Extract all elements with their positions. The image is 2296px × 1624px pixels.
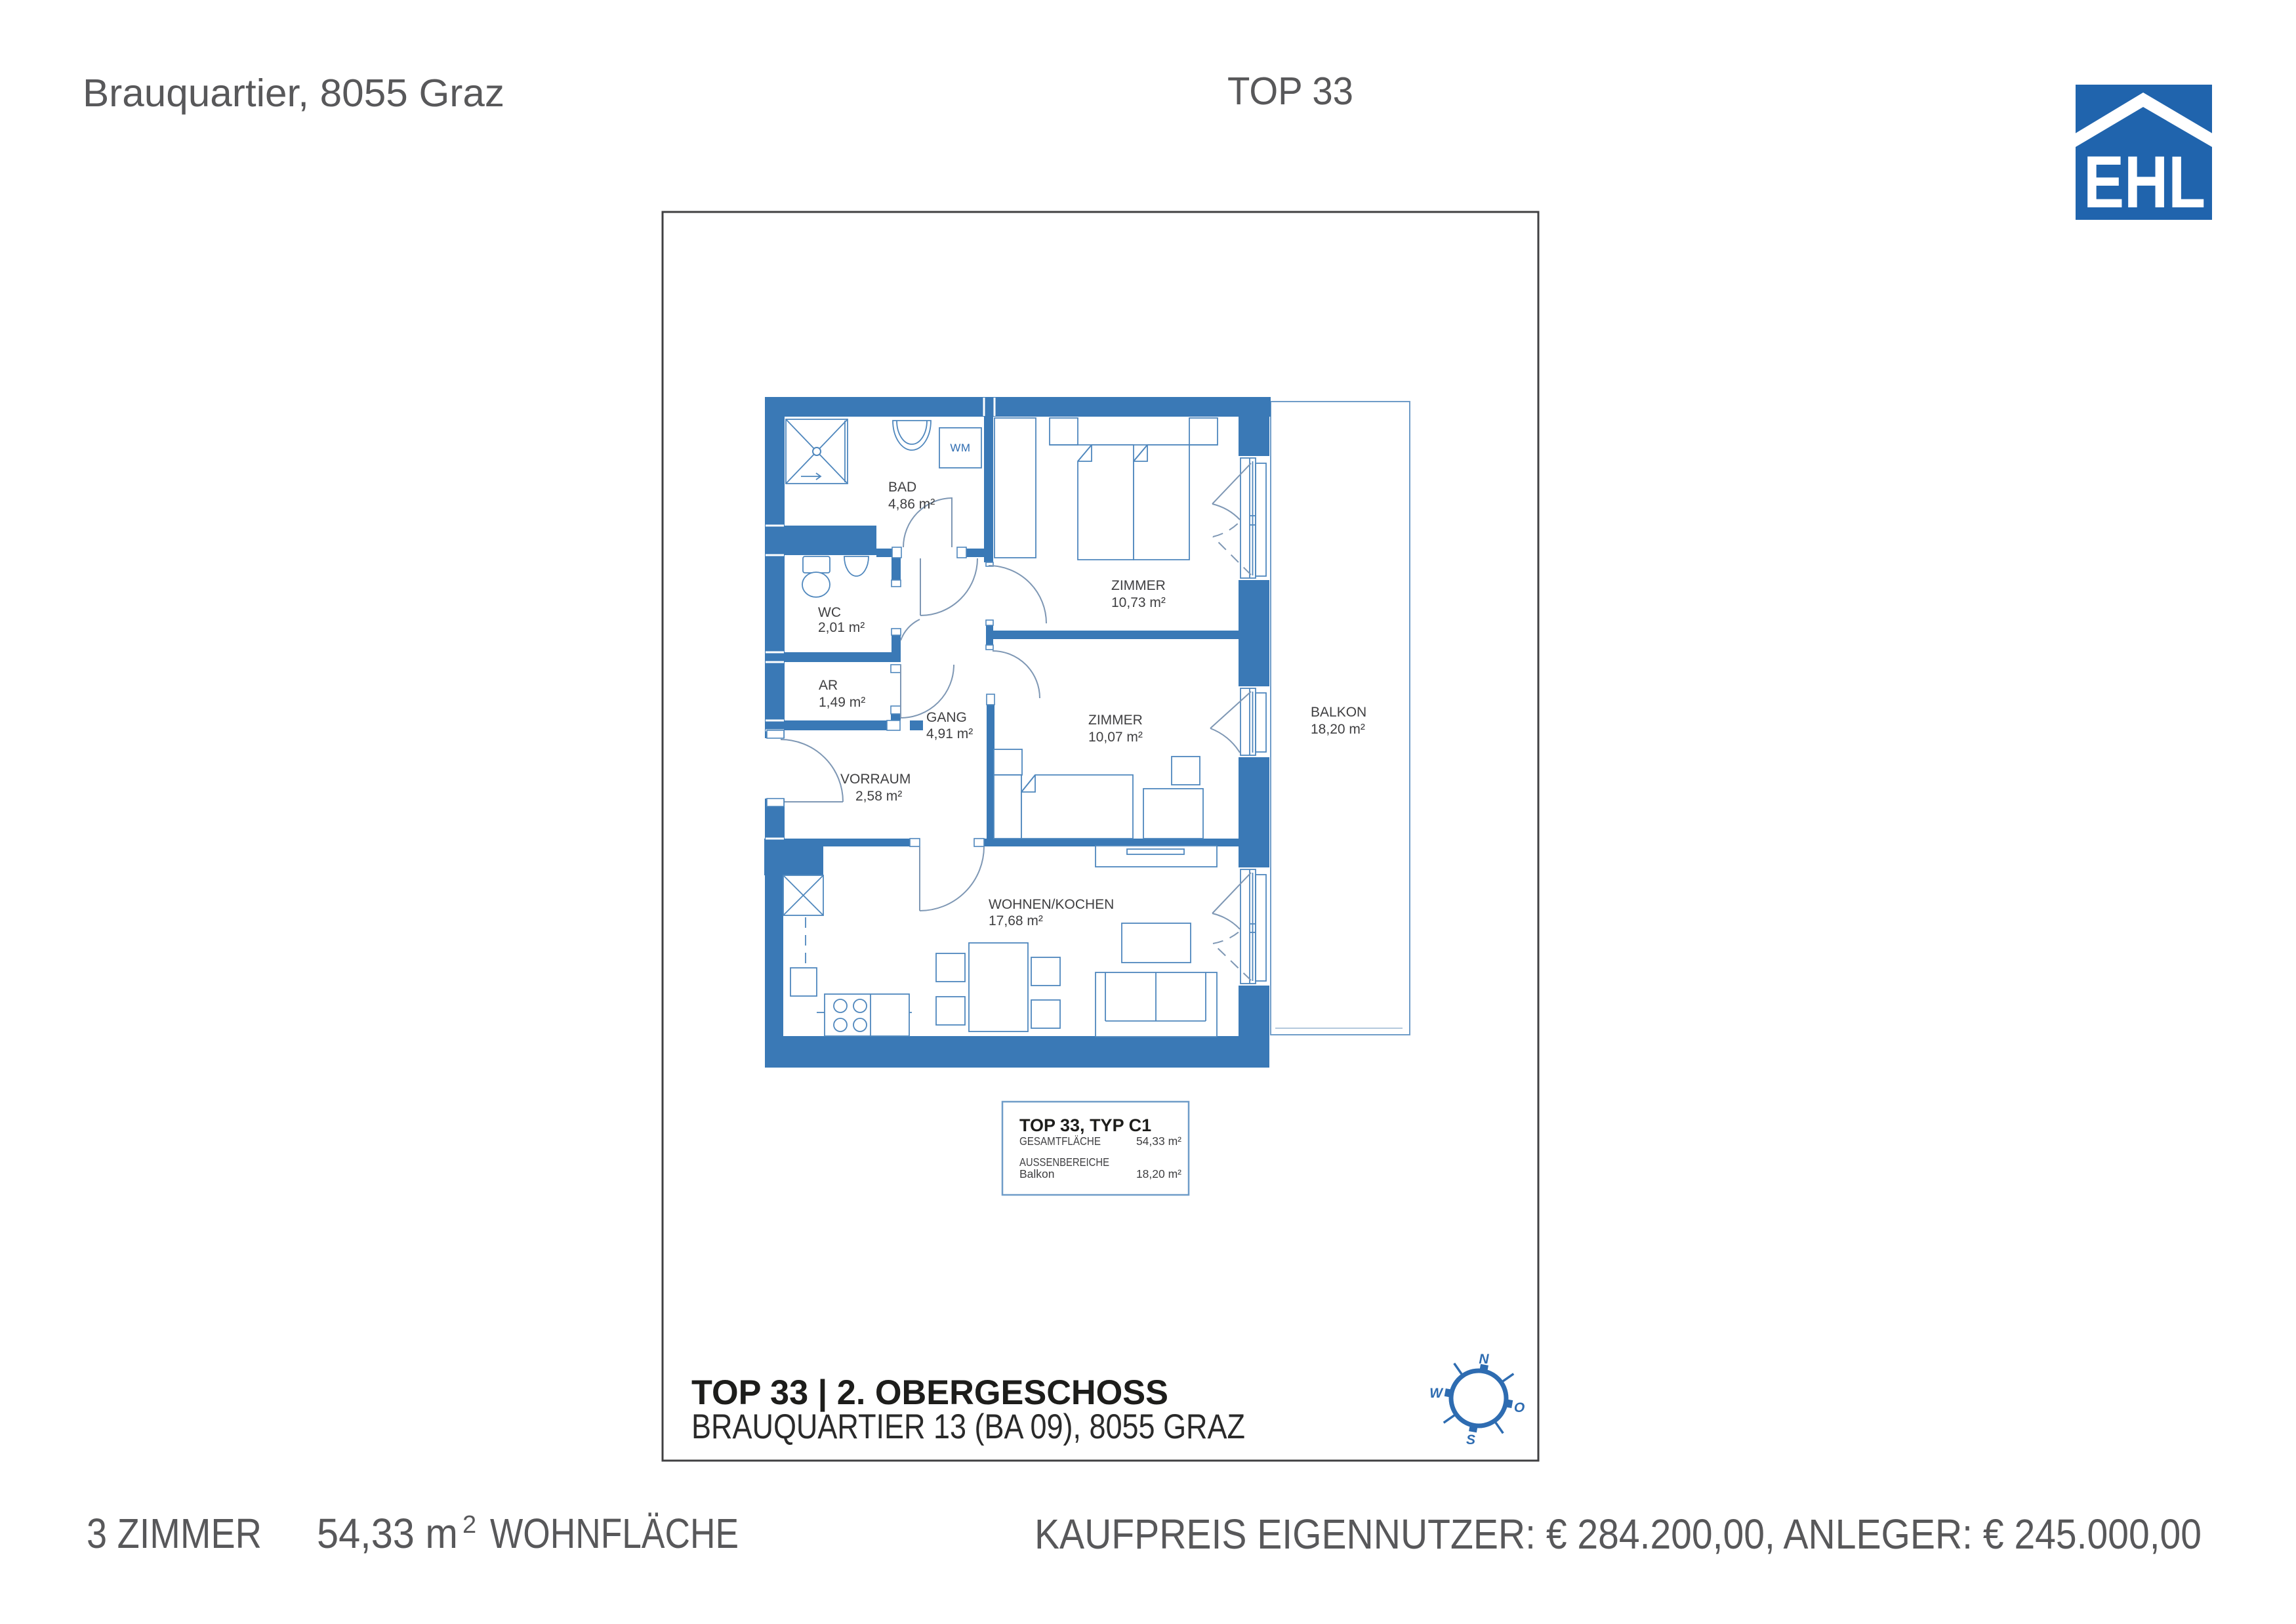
svg-text:S: S	[1466, 1432, 1475, 1447]
svg-text:Brauquartier, 8055 Graz: Brauquartier, 8055 Graz	[83, 72, 504, 115]
svg-text:GESAMTFLÄCHE: GESAMTFLÄCHE	[1019, 1135, 1101, 1148]
svg-text:TOP 33, TYP C1: TOP 33, TYP C1	[1019, 1115, 1151, 1135]
svg-text:4,86 m²: 4,86 m²	[888, 497, 935, 512]
svg-text:BAD: BAD	[888, 480, 916, 495]
svg-text:18,20 m²: 18,20 m²	[1311, 722, 1365, 737]
svg-text:10,07 m²: 10,07 m²	[1088, 730, 1143, 745]
svg-text:2,01 m²: 2,01 m²	[818, 620, 865, 635]
svg-text:KAUFPREIS EIGENNUTZER: € 284.2: KAUFPREIS EIGENNUTZER: € 284.200,00, ANL…	[1035, 1510, 2202, 1558]
svg-text:BALKON: BALKON	[1311, 705, 1366, 720]
svg-text:VORRAUM: VORRAUM	[840, 772, 911, 787]
svg-text:3 ZIMMER: 3 ZIMMER	[87, 1510, 262, 1557]
svg-text:TOP 33 | 2. OBERGESCHOSS: TOP 33 | 2. OBERGESCHOSS	[691, 1373, 1168, 1413]
svg-text:Balkon: Balkon	[1019, 1167, 1055, 1180]
svg-text:18,20 m²: 18,20 m²	[1136, 1167, 1181, 1180]
svg-text:2: 2	[462, 1511, 476, 1539]
svg-text:WC: WC	[818, 605, 841, 620]
svg-text:54,33 m²: 54,33 m²	[1136, 1135, 1181, 1148]
svg-text:AR: AR	[819, 678, 838, 693]
svg-text:N: N	[1479, 1352, 1489, 1367]
svg-text:17,68 m²: 17,68 m²	[989, 913, 1043, 928]
svg-text:ZIMMER: ZIMMER	[1111, 578, 1166, 593]
svg-text:1,49 m²: 1,49 m²	[819, 695, 865, 710]
svg-text:4,91 m²: 4,91 m²	[926, 726, 973, 741]
svg-text:GANG: GANG	[926, 710, 967, 725]
svg-text:W: W	[1429, 1386, 1444, 1401]
svg-text:54,33 m: 54,33 m	[317, 1510, 458, 1557]
svg-text:AUSSENBEREICHE: AUSSENBEREICHE	[1019, 1156, 1109, 1169]
svg-text:WOHNEN/KOCHEN: WOHNEN/KOCHEN	[989, 897, 1114, 912]
svg-text:EHL: EHL	[2083, 141, 2205, 223]
svg-text:WM: WM	[950, 442, 970, 454]
svg-text:2,58 m²: 2,58 m²	[855, 789, 902, 804]
svg-text:ZIMMER: ZIMMER	[1088, 713, 1143, 728]
svg-text:O: O	[1514, 1400, 1525, 1415]
svg-text:TOP 33: TOP 33	[1227, 70, 1353, 113]
svg-text:10,73 m²: 10,73 m²	[1111, 595, 1166, 610]
svg-text:WOHNFLÄCHE: WOHNFLÄCHE	[490, 1510, 739, 1557]
svg-text:BRAUQUARTIER 13 (BA 09), 8055: BRAUQUARTIER 13 (BA 09), 8055 GRAZ	[691, 1407, 1245, 1446]
